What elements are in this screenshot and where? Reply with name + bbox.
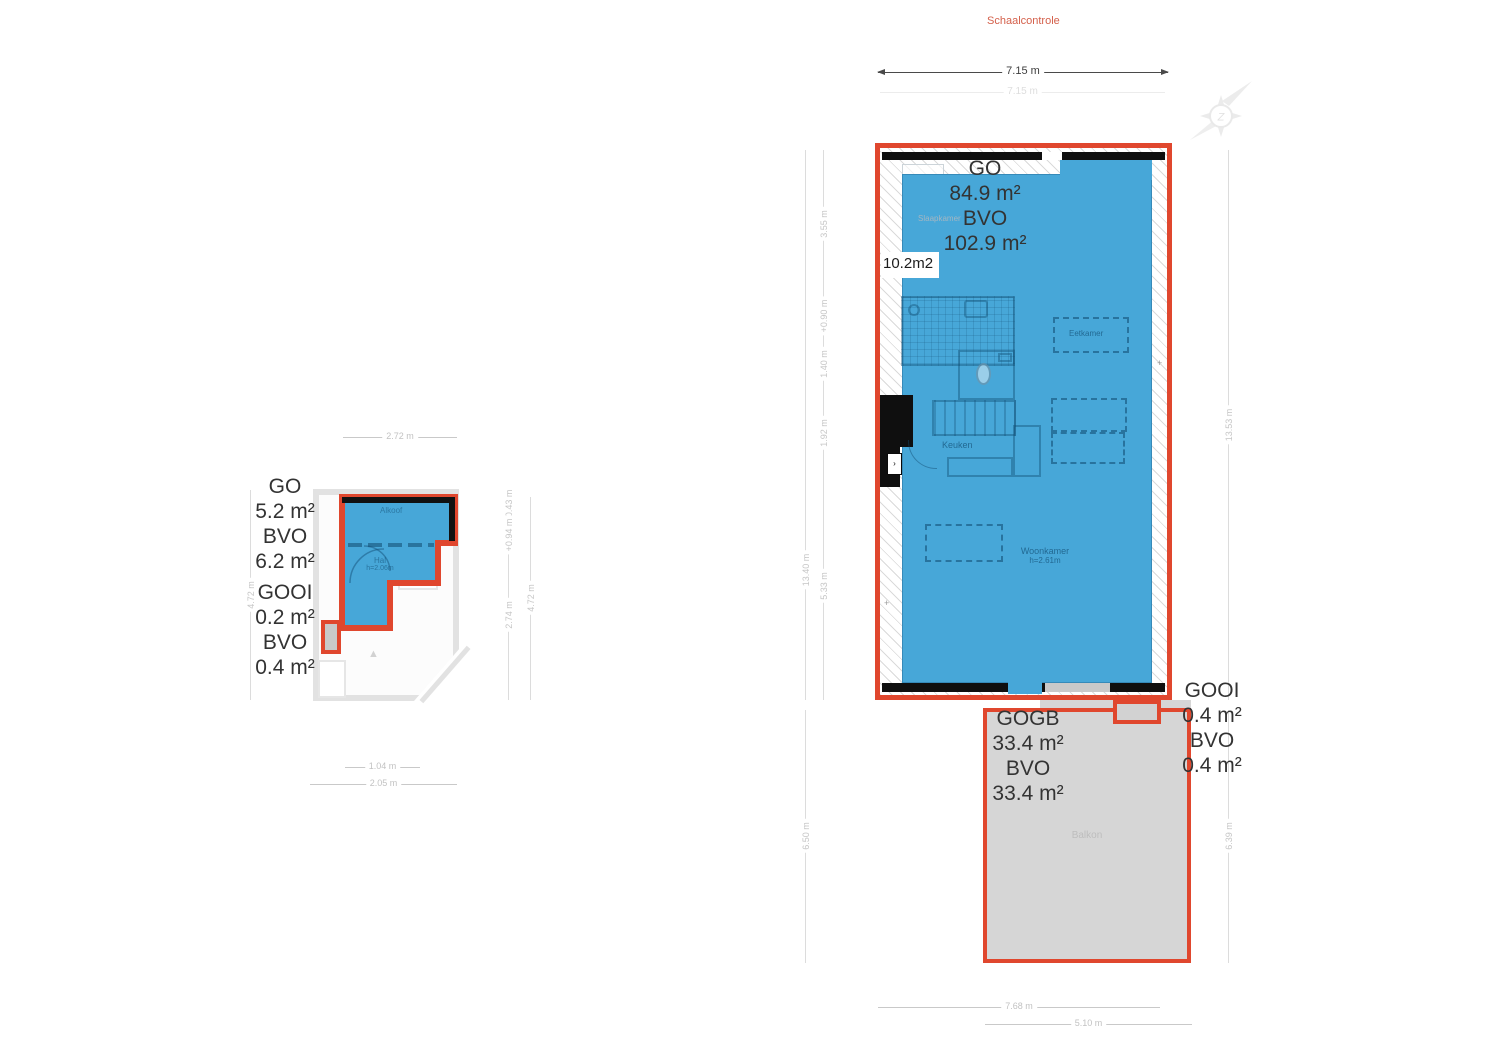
arrow-right-icon xyxy=(1161,69,1169,75)
dim-label: 2.72 m xyxy=(382,431,418,441)
floorplan-canvas: Schaalcontrole Z Z 7.15 m 7.15 m › xyxy=(0,0,1500,1060)
dim-label: 7.68 m xyxy=(1001,1001,1037,1011)
kitchen-counter xyxy=(947,457,1013,477)
bvo-value: 0.4 m² xyxy=(210,655,360,680)
dim-left-lower: 6.50 m xyxy=(805,710,806,963)
room-label-woonkamer: Woonkamer h=2.61m xyxy=(1000,546,1090,565)
dim-label: 5.33 m xyxy=(819,569,829,603)
bvo-label: BVO xyxy=(885,206,1085,231)
gogb-bvo-label: BVO xyxy=(953,756,1103,781)
go-value: 84.9 m² xyxy=(885,181,1085,206)
dim-small-right-total: 4.72 m xyxy=(530,497,531,700)
stairs xyxy=(932,400,1016,436)
hal-height: h=2.06m xyxy=(358,565,402,572)
compass-letter: Z xyxy=(1217,112,1226,124)
dim-label: 1.04 m xyxy=(365,761,401,771)
gooi-label: GOOI xyxy=(210,580,360,605)
side-area-label: 10.2m2 xyxy=(883,255,933,272)
furniture-table xyxy=(1051,398,1127,432)
hal-name: Hal xyxy=(358,556,402,565)
room-label-top-room: Alkoof xyxy=(380,506,402,515)
dim-label: 2.05 m xyxy=(366,778,402,788)
bvo-label: BVO xyxy=(210,630,360,655)
dim-small-bottom-outer: 2.05 m xyxy=(310,784,457,785)
underlay-corner-cut xyxy=(414,648,460,701)
dim-top-715: 7.15 m xyxy=(878,72,1168,73)
room-label-eetkamer: Eetkamer xyxy=(1069,329,1103,338)
gooi-area-block: GOOI 0.4 m² BVO 0.4 m² xyxy=(1137,678,1287,778)
large-plan-area-block: GO 84.9 m² BVO 102.9 m² xyxy=(885,156,1085,256)
dim-label: 13.53 m xyxy=(1224,406,1234,445)
dim-label: 4.72 m xyxy=(526,581,536,615)
woonkamer-height: h=2.61m xyxy=(1000,556,1090,565)
furniture-eetkamer: Eetkamer xyxy=(1053,317,1129,353)
wall-bottom-gap xyxy=(1045,683,1110,692)
gogb-label: GOGB xyxy=(953,706,1103,731)
gooi-label: GOOI xyxy=(1137,678,1287,703)
dim-left-total: 13.40 m xyxy=(805,150,806,700)
gogb-bvo-value: 33.4 m² xyxy=(953,781,1103,806)
dim-label: +0.94 m xyxy=(504,516,514,555)
dim-label: 7.15 m xyxy=(1002,65,1044,77)
wc-sink-icon xyxy=(998,353,1012,362)
bvo-label: BVO xyxy=(210,524,360,549)
dim-label: 5.10 m xyxy=(1071,1018,1107,1028)
room-label-keuken: Keuken xyxy=(942,440,973,450)
plus-mark-2: + xyxy=(884,598,889,608)
dim-top-715-shadow: 7.15 m xyxy=(880,92,1165,93)
dim-label: 6.50 m xyxy=(801,819,811,853)
woonkamer-name: Woonkamer xyxy=(1000,546,1090,556)
dim-bottom-outer: 7.68 m xyxy=(878,1007,1160,1008)
dim-label: 2.74 m xyxy=(504,598,514,632)
plus-mark: + xyxy=(1157,358,1162,368)
gogb-area-block: GOGB 33.4 m² BVO 33.4 m² xyxy=(953,706,1103,806)
gooi-bvo-label: BVO xyxy=(1137,728,1287,753)
dim-label: 1.40 m xyxy=(819,347,829,381)
gooi-value: 0.4 m² xyxy=(1137,703,1287,728)
dim-label: 13.40 m xyxy=(801,551,811,590)
gooi-value: 0.2 m² xyxy=(210,605,360,630)
furniture-sofa xyxy=(925,524,1003,562)
bvo-value: 6.2 m² xyxy=(210,549,360,574)
gooi-bvo-value: 0.4 m² xyxy=(1137,753,1287,778)
furniture-table-2 xyxy=(1051,432,1125,464)
bvo-value: 102.9 m² xyxy=(885,231,1085,256)
dim-left-segments: 3.55 m +0.90 m 1.40 m 1.92 m 5.33 m xyxy=(823,150,824,700)
dim-small-top: 2.72 m xyxy=(343,437,457,438)
dim-label: +0.90 m xyxy=(819,297,829,336)
dim-bottom-inner: 5.10 m xyxy=(985,1024,1192,1025)
shower-icon xyxy=(964,300,988,318)
meter-cabinet: › xyxy=(887,453,902,475)
gogb-value: 33.4 m² xyxy=(953,731,1103,756)
go-label: GO xyxy=(210,474,360,499)
go-value: 5.2 m² xyxy=(210,499,360,524)
dim-label: 6.39 m xyxy=(1224,819,1234,853)
room-label-hal: Hal h=2.06m xyxy=(358,556,402,572)
small-plan-area-block: GO 5.2 m² BVO 6.2 m² xyxy=(210,474,360,574)
dim-label: 1.92 m xyxy=(819,416,829,450)
compass-icon: Z xyxy=(1188,78,1256,146)
toilet-icon xyxy=(976,363,991,385)
chimney-tab xyxy=(1008,678,1042,694)
scale-check-label: Schaalcontrole xyxy=(987,15,1060,27)
sink-icon xyxy=(908,304,920,316)
arrow-left-icon xyxy=(877,69,885,75)
triangle-up-icon: ▲ xyxy=(368,648,379,660)
small-plan-gooi-block: GOOI 0.2 m² BVO 0.4 m² xyxy=(210,580,360,680)
dim-small-right-segments: +0.43 m +0.94 m 2.74 m xyxy=(508,497,509,700)
dim-label: 3.55 m xyxy=(819,207,829,241)
balcony-label: Balkon xyxy=(987,830,1187,841)
go-label: GO xyxy=(885,156,1085,181)
dim-label: 7.15 m xyxy=(1003,86,1042,97)
dim-small-bottom-inner: 1.04 m xyxy=(345,767,420,768)
dim-right-total: 13.53 m xyxy=(1228,150,1229,700)
kitchen-cabinet xyxy=(1013,425,1041,477)
